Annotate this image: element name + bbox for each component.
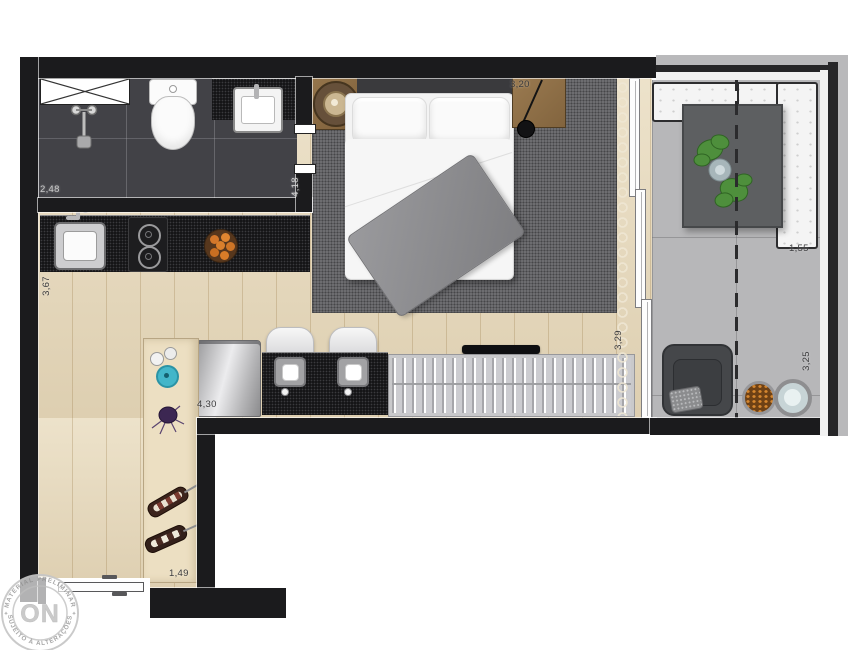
dimension-label-kitchen-depth: 3,67 — [41, 273, 51, 299]
sliding-door-panel — [635, 189, 646, 308]
dimension-label-bedroom-width: 3,20 — [510, 79, 530, 90]
tv — [462, 345, 540, 354]
sliding-door-panel — [629, 78, 640, 197]
cup — [344, 388, 352, 396]
pet-water-bowl — [774, 379, 812, 417]
place-setting — [274, 357, 306, 387]
dimension-label-kitchen-length: 4,30 — [197, 399, 217, 410]
railing-right-frame — [828, 62, 838, 436]
burner-center — [145, 253, 152, 260]
cooktop — [128, 217, 168, 272]
bathroom-sink-basin — [241, 96, 275, 124]
decor-flower-icon — [164, 347, 177, 360]
watermark-stamp: MATERIAL PRELIMINAR SUJEITO À ALTERAÇÕES… — [0, 551, 112, 650]
decor-vase-center — [164, 373, 169, 378]
kitchen-sink — [54, 222, 106, 270]
sideboard-shelf-line — [392, 383, 631, 385]
decor-vase-teal — [156, 365, 179, 388]
toilet-bowl — [151, 96, 195, 150]
floor-plan: 2,48 4,18 3,67 4,30 1,49 3,20 3,29 3,25 … — [0, 0, 849, 650]
sideboard-ribs — [392, 358, 631, 413]
place-setting — [337, 357, 369, 387]
shower-box — [40, 78, 130, 105]
sideboard — [388, 354, 635, 417]
decor-plant — [150, 398, 190, 438]
wall-bottom-stub — [148, 588, 286, 618]
dimension-label-bathroom-width: 2,48 — [40, 184, 60, 195]
pet-food-bowl — [742, 381, 776, 415]
wall-bathroom-south — [38, 198, 312, 212]
decor-tray-center — [331, 99, 338, 106]
bathroom-door-jamb — [294, 124, 316, 134]
kitchen-faucet-spout — [66, 216, 79, 220]
armchair — [662, 344, 733, 416]
bathroom-door-jamb — [294, 164, 316, 174]
watermark-star-icon: ✦ — [71, 611, 76, 618]
wall-main-south — [197, 418, 656, 434]
water-surface — [784, 389, 801, 406]
decor-flower-icon — [150, 352, 164, 366]
watermark-star-icon: ✦ — [3, 611, 8, 618]
bathroom-faucet-icon — [254, 84, 259, 99]
dimension-label-living-length: 3,29 — [613, 327, 623, 353]
railing-top-frame — [656, 65, 838, 72]
railing-right-outer — [838, 55, 848, 436]
dimension-label-balcony-length: 3,25 — [801, 348, 811, 374]
cup — [281, 388, 289, 396]
pillow — [352, 97, 427, 144]
kitchen-sink-basin — [63, 231, 97, 261]
toilet-flush-button — [169, 85, 177, 93]
railing-top-outer — [656, 55, 848, 65]
x-cross-icon — [41, 79, 129, 104]
fruit-icon — [216, 241, 225, 250]
shower-fixture — [64, 102, 108, 154]
railing-right-inner — [820, 70, 828, 436]
wall-bathroom-east-upper — [296, 77, 312, 130]
wall-top — [20, 57, 656, 78]
railing-top-inner — [656, 72, 824, 80]
curtain — [616, 80, 629, 416]
burner-center — [145, 231, 152, 238]
plate — [345, 364, 362, 381]
wall-balcony-south — [650, 418, 848, 435]
door-handle-icon — [112, 592, 127, 596]
dimension-label-bathroom-length: 4,18 — [290, 174, 300, 200]
dimension-label-entry-width: 1,49 — [169, 568, 189, 579]
sliding-door-panel — [641, 299, 652, 419]
watermark-center-text: ON — [20, 600, 60, 628]
table-plants — [688, 128, 762, 220]
wall-left — [20, 57, 38, 602]
floor-lamp — [517, 120, 535, 138]
projection-dashed-line — [735, 77, 738, 418]
bathroom-sink — [233, 87, 283, 133]
fruit-bowl — [204, 229, 238, 263]
dimension-label-balcony-width: 1,55 — [789, 243, 809, 254]
armchair-pillow — [668, 385, 704, 413]
plate — [282, 364, 299, 381]
